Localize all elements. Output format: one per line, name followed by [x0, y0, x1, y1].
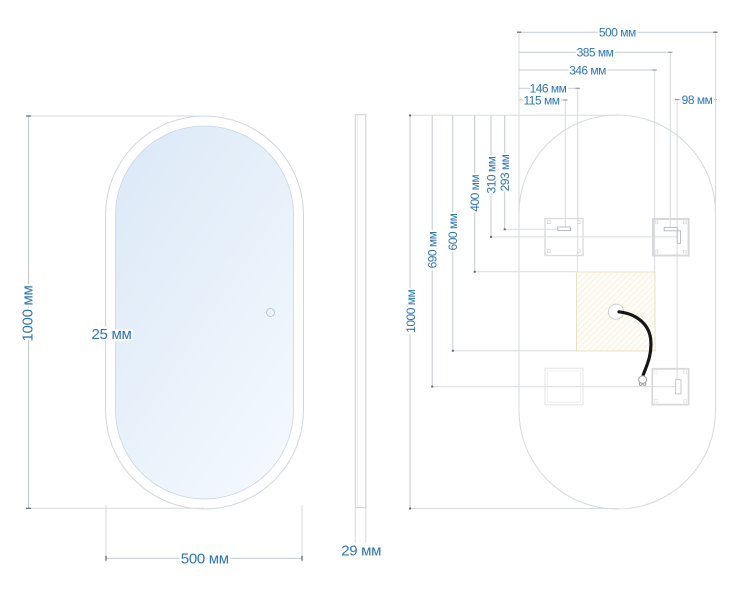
svg-text:385 мм: 385 мм [577, 46, 614, 60]
svg-text:600 мм: 600 мм [446, 213, 460, 250]
svg-text:690 мм: 690 мм [426, 231, 440, 268]
svg-text:500 мм: 500 мм [599, 26, 636, 40]
svg-text:98 мм: 98 мм [682, 93, 713, 107]
svg-text:500 мм: 500 мм [181, 551, 229, 568]
svg-text:1000 мм: 1000 мм [19, 285, 36, 341]
svg-text:25 мм: 25 мм [92, 326, 132, 343]
svg-text:310 мм: 310 мм [484, 156, 498, 193]
svg-text:115 мм: 115 мм [524, 93, 560, 107]
svg-text:293 мм: 293 мм [498, 154, 512, 191]
svg-text:346 мм: 346 мм [569, 63, 606, 77]
svg-text:29 мм: 29 мм [341, 543, 381, 560]
svg-text:400 мм: 400 мм [468, 175, 482, 212]
svg-text:1000 мм: 1000 мм [404, 290, 418, 333]
